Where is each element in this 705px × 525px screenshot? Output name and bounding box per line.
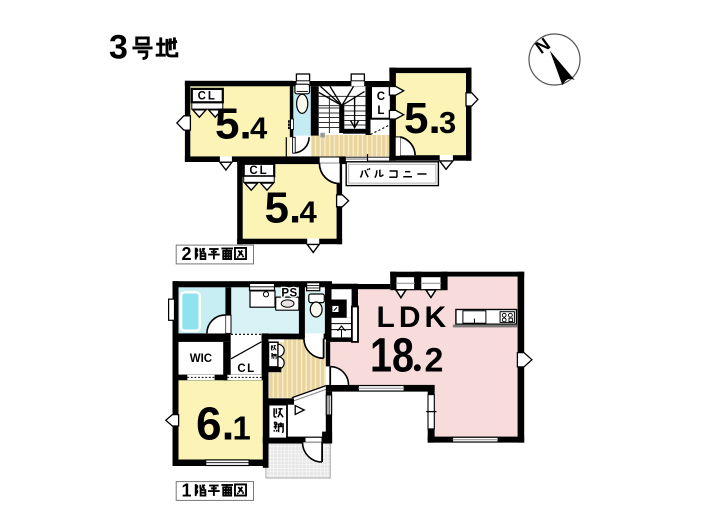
svg-text:CL: CL: [237, 363, 255, 375]
svg-text:CL: CL: [249, 165, 268, 177]
svg-text:C: C: [377, 91, 385, 103]
svg-text:1: 1: [182, 480, 192, 500]
svg-text:PS: PS: [281, 288, 297, 300]
svg-text:18: 18: [370, 330, 414, 383]
svg-text:6.: 6.: [196, 398, 234, 450]
svg-text:2: 2: [182, 244, 192, 264]
svg-text:5.: 5.: [404, 94, 441, 143]
svg-text:5.: 5.: [265, 184, 302, 233]
svg-text:1: 1: [233, 410, 251, 447]
svg-text:4: 4: [300, 195, 318, 230]
svg-text:3: 3: [439, 105, 456, 140]
svg-text:WIC: WIC: [190, 353, 212, 365]
svg-text:3: 3: [109, 29, 128, 67]
svg-text:4: 4: [250, 111, 268, 146]
svg-text:5.: 5.: [215, 100, 252, 149]
svg-text:2: 2: [425, 342, 444, 380]
svg-text:L: L: [377, 105, 384, 117]
